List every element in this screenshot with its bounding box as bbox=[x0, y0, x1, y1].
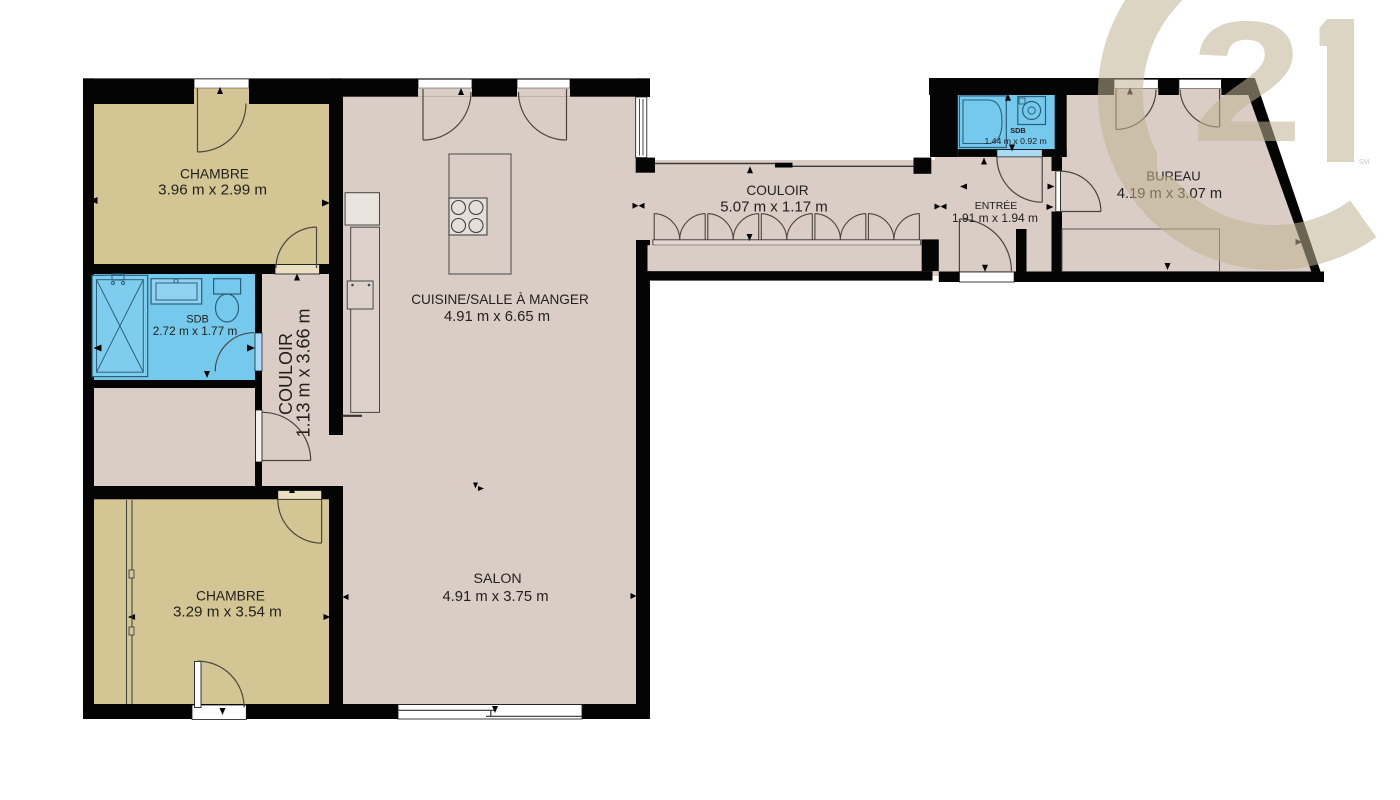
svg-text:1.44 m x 0.92 m: 1.44 m x 0.92 m bbox=[984, 136, 1046, 146]
svg-text:5.07 m x 1.17 m: 5.07 m x 1.17 m bbox=[720, 198, 828, 215]
svg-text:CUISINE/SALLE À MANGER: CUISINE/SALLE À MANGER bbox=[411, 292, 589, 307]
svg-text:COULOIR: COULOIR bbox=[746, 183, 808, 198]
svg-text:1.91 m x 1.94 m: 1.91 m x 1.94 m bbox=[952, 211, 1038, 225]
svg-text:3.29 m x 3.54 m: 3.29 m x 3.54 m bbox=[173, 604, 282, 621]
svg-text:CHAMBRE: CHAMBRE bbox=[180, 166, 249, 181]
svg-text:SM: SM bbox=[1359, 159, 1370, 166]
svg-text:2: 2 bbox=[1191, 0, 1303, 178]
svg-text:4.91 m x 6.65 m: 4.91 m x 6.65 m bbox=[444, 309, 550, 325]
svg-text:SALON: SALON bbox=[474, 571, 522, 587]
svg-text:2.72 m x 1.77 m: 2.72 m x 1.77 m bbox=[153, 324, 238, 338]
svg-text:1.13 m x 3.66 m: 1.13 m x 3.66 m bbox=[294, 308, 314, 437]
svg-text:SDB: SDB bbox=[1010, 126, 1025, 135]
svg-text:CHAMBRE: CHAMBRE bbox=[196, 589, 265, 604]
svg-text:4.91 m x 3.75 m: 4.91 m x 3.75 m bbox=[442, 589, 548, 605]
svg-text:3.96 m x 2.99 m: 3.96 m x 2.99 m bbox=[158, 181, 267, 198]
